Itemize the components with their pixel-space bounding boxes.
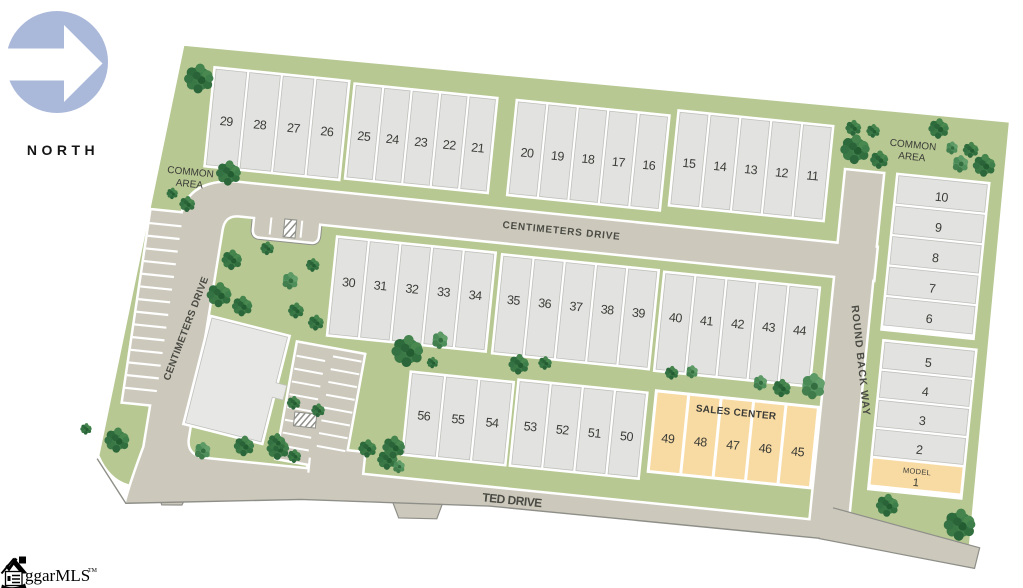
svg-text:NORTH: NORTH <box>27 142 99 158</box>
svg-text:43: 43 <box>761 320 776 335</box>
svg-text:54: 54 <box>485 415 500 430</box>
svg-text:39: 39 <box>631 306 646 321</box>
svg-text:18: 18 <box>581 152 596 167</box>
svg-text:44: 44 <box>792 323 807 338</box>
svg-text:50: 50 <box>619 429 634 444</box>
svg-text:29: 29 <box>219 114 234 129</box>
svg-text:15: 15 <box>682 156 697 171</box>
svg-text:27: 27 <box>286 121 301 136</box>
svg-text:40: 40 <box>668 310 683 325</box>
svg-text:52: 52 <box>555 422 570 437</box>
svg-text:1: 1 <box>912 477 919 490</box>
svg-text:38: 38 <box>600 302 615 317</box>
svg-text:32: 32 <box>405 281 420 296</box>
svg-text:49: 49 <box>661 431 676 446</box>
svg-text:45: 45 <box>790 444 805 459</box>
svg-text:34: 34 <box>468 288 483 303</box>
svg-text:13: 13 <box>744 162 759 177</box>
svg-text:53: 53 <box>523 419 538 434</box>
svg-text:16: 16 <box>642 158 657 173</box>
svg-text:42: 42 <box>730 317 745 332</box>
svg-text:17: 17 <box>611 155 626 170</box>
svg-text:47: 47 <box>726 438 741 453</box>
svg-text:30: 30 <box>341 275 356 290</box>
svg-text:11: 11 <box>806 168 820 183</box>
svg-text:25: 25 <box>357 129 372 144</box>
svg-text:21: 21 <box>471 140 486 155</box>
svg-text:24: 24 <box>385 132 400 147</box>
svg-text:23: 23 <box>414 135 429 150</box>
svg-text:55: 55 <box>451 412 466 427</box>
svg-text:22: 22 <box>442 138 457 153</box>
svg-text:37: 37 <box>569 299 584 314</box>
svg-text:28: 28 <box>253 117 268 132</box>
svg-text:10: 10 <box>934 190 949 205</box>
svg-text:51: 51 <box>587 426 602 441</box>
svg-text:ggarMLS: ggarMLS <box>25 566 90 585</box>
svg-text:35: 35 <box>506 293 521 308</box>
svg-text:31: 31 <box>373 278 388 293</box>
svg-text:19: 19 <box>550 149 565 164</box>
svg-text:26: 26 <box>320 124 335 139</box>
svg-text:33: 33 <box>436 285 451 300</box>
svg-text:36: 36 <box>538 296 553 311</box>
svg-text:20: 20 <box>520 145 535 160</box>
svg-text:46: 46 <box>758 441 773 456</box>
svg-text:14: 14 <box>713 159 728 174</box>
svg-text:TM: TM <box>88 568 98 574</box>
svg-text:41: 41 <box>699 313 714 328</box>
svg-text:12: 12 <box>774 165 789 180</box>
svg-text:56: 56 <box>417 408 432 423</box>
svg-text:48: 48 <box>693 434 708 449</box>
